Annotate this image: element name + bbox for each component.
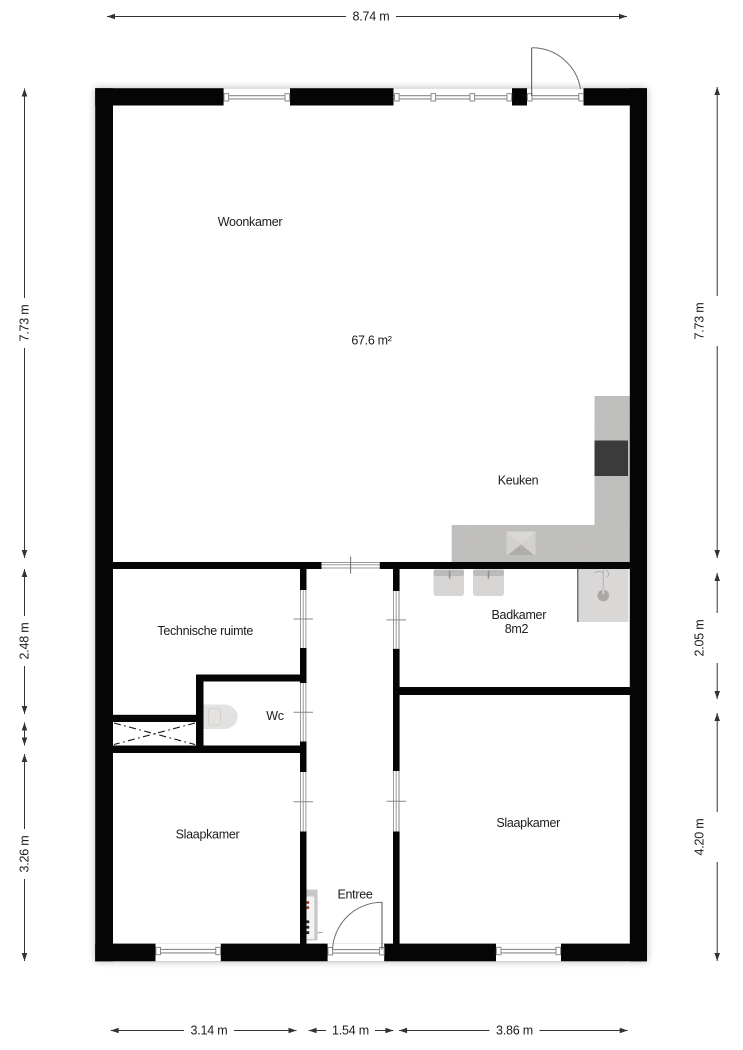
svg-text:Entree: Entree [337,888,372,902]
svg-text:8m2: 8m2 [505,622,529,636]
svg-text:Wc: Wc [266,709,283,723]
svg-text:3.14 m: 3.14 m [190,1024,227,1038]
svg-text:3.86 m: 3.86 m [496,1024,533,1038]
svg-text:4.20 m: 4.20 m [693,818,707,855]
svg-text:3.26 m: 3.26 m [18,835,32,872]
svg-text:Woonkamer: Woonkamer [218,215,283,229]
svg-text:Slaapkamer: Slaapkamer [176,828,240,842]
svg-text:2.48 m: 2.48 m [18,622,32,659]
svg-text:7.73 m: 7.73 m [18,304,32,341]
svg-text:2.05 m: 2.05 m [693,619,707,656]
svg-text:Technische ruimte: Technische ruimte [157,624,253,638]
svg-text:Slaapkamer: Slaapkamer [496,816,560,830]
svg-text:7.73 m: 7.73 m [693,302,707,339]
svg-text:8.74 m: 8.74 m [352,10,389,24]
svg-text:67.6 m²: 67.6 m² [351,334,391,348]
svg-text:Keuken: Keuken [498,474,539,488]
svg-text:Badkamer: Badkamer [492,608,547,622]
svg-text:1.54 m: 1.54 m [332,1024,369,1038]
